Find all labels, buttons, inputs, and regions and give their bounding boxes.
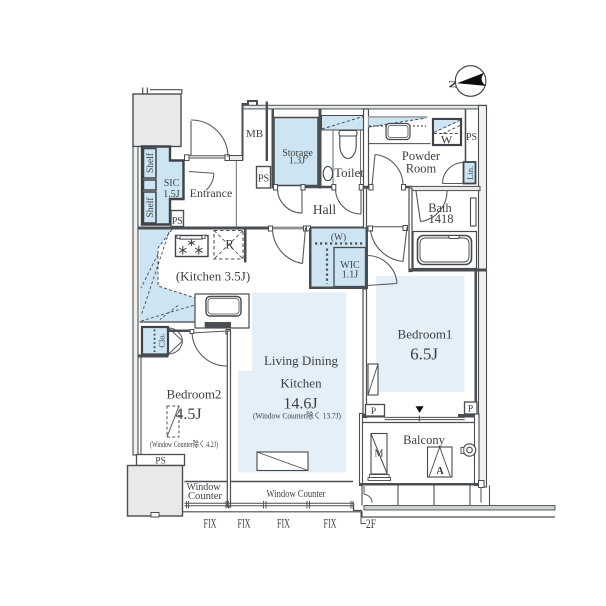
svg-text:Bedroom2: Bedroom2 [167, 387, 222, 402]
svg-text:Shelf: Shelf [145, 152, 156, 173]
svg-text:PS: PS [466, 132, 477, 143]
svg-text:Lin.: Lin. [465, 166, 475, 180]
svg-text:FIX: FIX [324, 516, 337, 530]
svg-text:1.5J: 1.5J [163, 189, 180, 200]
svg-text:Room: Room [406, 162, 437, 176]
svg-text:Counter: Counter [188, 491, 223, 502]
svg-text:1418: 1418 [429, 212, 454, 226]
svg-text:(W): (W) [331, 232, 346, 243]
svg-text:Window Counter: Window Counter [267, 489, 326, 500]
svg-text:(Window Counter除く 4.2J): (Window Counter除く 4.2J) [150, 439, 218, 449]
svg-text:Shelf: Shelf [145, 197, 156, 218]
svg-text:Living Dining: Living Dining [264, 353, 339, 368]
svg-text:PS: PS [172, 216, 183, 227]
svg-text:FIX: FIX [238, 516, 251, 530]
svg-text:MB: MB [246, 128, 263, 140]
svg-text:Toilet: Toilet [334, 166, 364, 180]
svg-text:FIX: FIX [277, 516, 290, 530]
svg-text:Hall: Hall [313, 202, 336, 217]
svg-text:2F: 2F [366, 517, 376, 531]
svg-text:P: P [371, 407, 376, 417]
svg-text:Clo.: Clo. [157, 333, 167, 347]
svg-text:(Kitchen 3.5J): (Kitchen 3.5J) [176, 269, 250, 284]
svg-text:A: A [436, 466, 444, 477]
svg-text:Kitchen: Kitchen [280, 375, 322, 390]
svg-text:Bedroom1: Bedroom1 [398, 327, 453, 342]
svg-text:N: N [446, 80, 458, 88]
svg-text:1.1J: 1.1J [342, 270, 359, 281]
svg-text:Balcony: Balcony [403, 433, 445, 447]
svg-text:Entrance: Entrance [190, 186, 233, 200]
svg-text:SIC: SIC [164, 178, 180, 189]
svg-text:1.3J: 1.3J [289, 156, 306, 167]
svg-text:(Window Counter除く 13.7J): (Window Counter除く 13.7J) [253, 411, 341, 421]
svg-text:PS: PS [258, 174, 269, 185]
svg-text:M: M [375, 449, 384, 460]
svg-text:R: R [225, 238, 234, 252]
svg-text:6.5J: 6.5J [410, 345, 438, 364]
svg-text:FIX: FIX [204, 516, 217, 530]
svg-text:P: P [468, 405, 473, 415]
svg-text:W: W [441, 133, 453, 147]
